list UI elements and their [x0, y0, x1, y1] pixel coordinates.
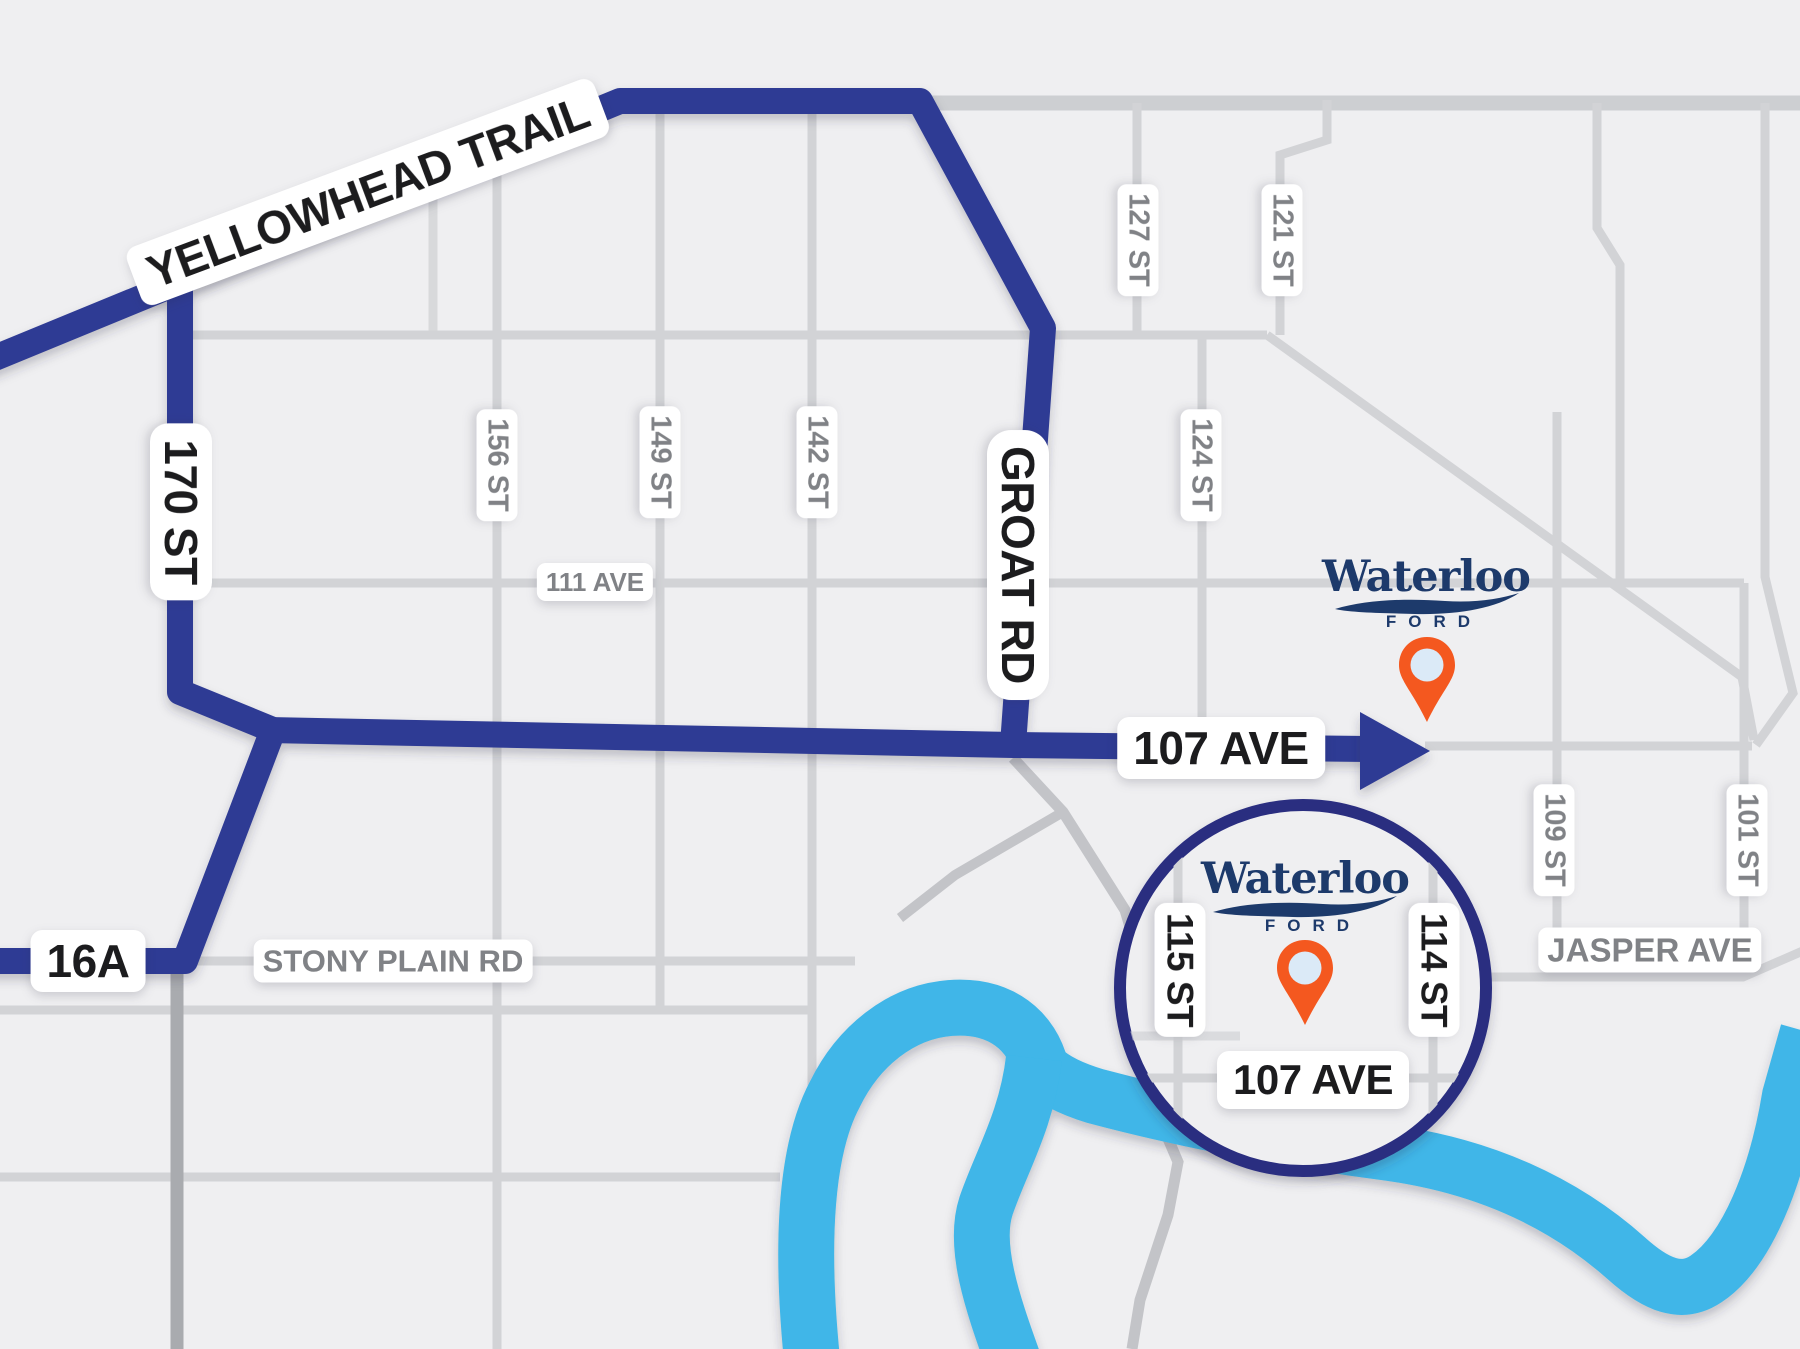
map-canvas: YELLOWHEAD TRAIL 170 ST GROAT RD 107 AVE…: [0, 0, 1800, 1349]
label-16a: 16A: [31, 930, 146, 992]
location-pin: [1397, 636, 1457, 724]
inset-label-115-st: 115 ST: [1155, 903, 1206, 1037]
label-127-st: 127 ST: [1118, 184, 1159, 296]
river-oxbow-return: [982, 1058, 1034, 1349]
inset-label-114-st: 114 ST: [1409, 903, 1460, 1037]
label-groat-rd: GROAT RD: [987, 430, 1049, 700]
label-101-st: 101 ST: [1727, 784, 1768, 896]
inset-brand-division: FORD: [1253, 916, 1361, 936]
inset-brand-swoosh: [1213, 896, 1397, 918]
label-111-ave: 111 AVE: [537, 563, 653, 601]
inset-location-pin: [1275, 939, 1335, 1027]
label-109-st: 109 ST: [1534, 784, 1575, 896]
label-142-st: 142 ST: [797, 406, 838, 518]
label-121-st: 121 ST: [1262, 184, 1303, 296]
label-jasper-ave: JASPER AVE: [1538, 928, 1761, 973]
route-yellowhead-groat: [0, 101, 1043, 745]
brand-division: FORD: [1374, 612, 1482, 632]
label-149-st: 149 ST: [640, 406, 681, 518]
label-156-st: 156 ST: [477, 409, 518, 521]
inset-label-107-ave: 107 AVE: [1217, 1051, 1409, 1109]
label-stony-plain-rd: STONY PLAIN RD: [254, 940, 533, 983]
label-170-st: 170 ST: [150, 423, 212, 600]
route-16a: [0, 730, 273, 961]
label-124-st: 124 ST: [1181, 409, 1222, 521]
label-107-ave: 107 AVE: [1117, 717, 1325, 779]
